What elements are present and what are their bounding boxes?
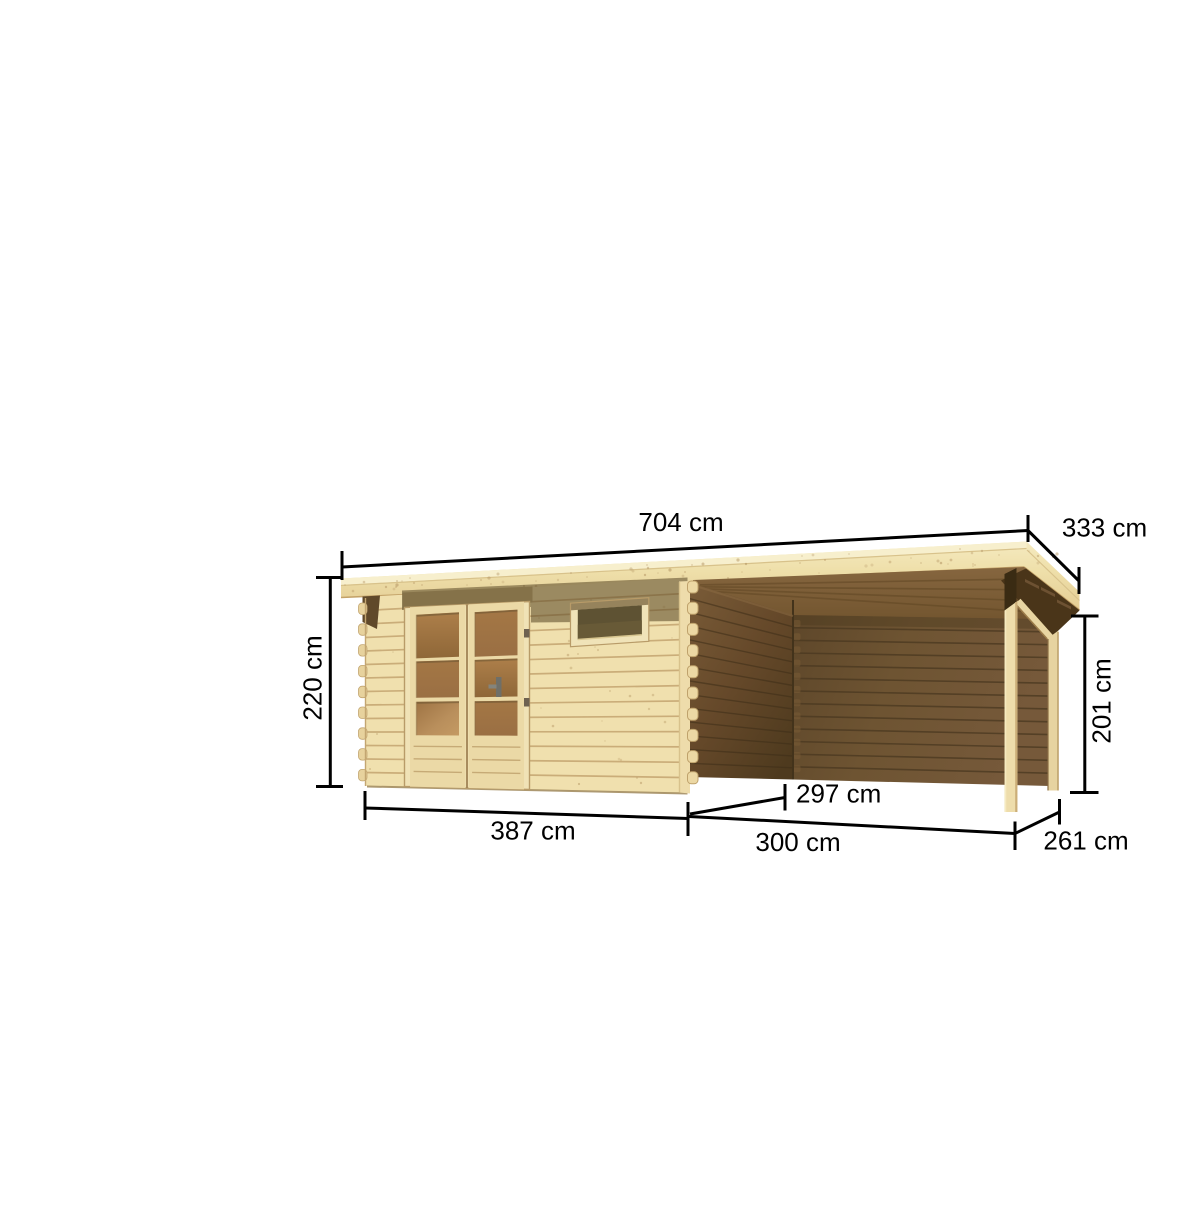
svg-text:220 cm: 220 cm [298, 635, 328, 720]
svg-text:333 cm: 333 cm [1062, 513, 1147, 543]
svg-text:300 cm: 300 cm [755, 827, 840, 857]
svg-text:297 cm: 297 cm [796, 779, 881, 809]
svg-text:201 cm: 201 cm [1086, 658, 1116, 743]
svg-text:261 cm: 261 cm [1043, 826, 1128, 856]
svg-text:704 cm: 704 cm [638, 507, 723, 537]
svg-text:387 cm: 387 cm [490, 816, 575, 846]
